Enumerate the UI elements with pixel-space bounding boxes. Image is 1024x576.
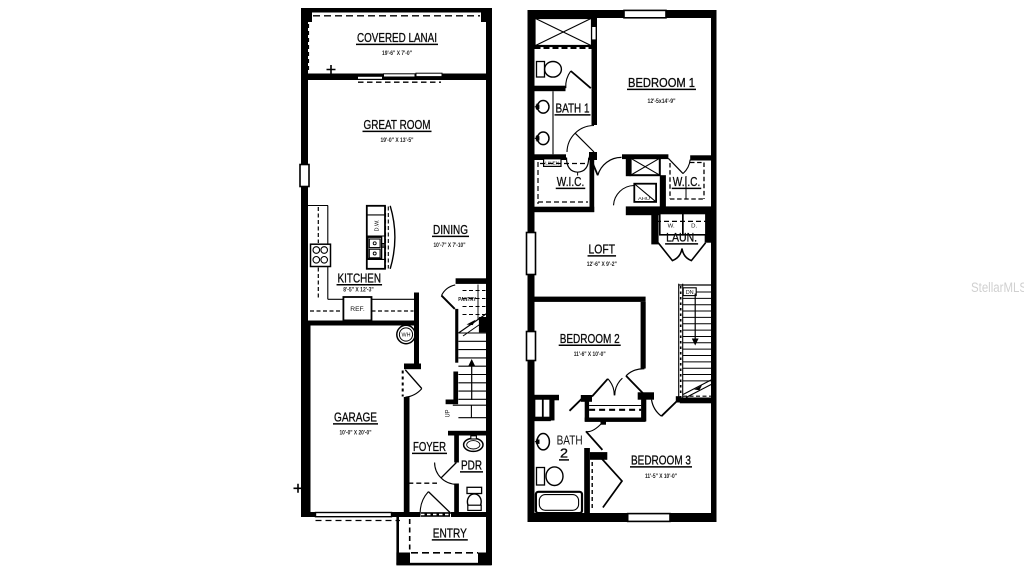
svg-text:12'-6" X 9'-2": 12'-6" X 9'-2" [587,261,617,268]
svg-text:W.I.C.: W.I.C. [557,174,585,189]
svg-text:LAUN.: LAUN. [666,231,697,245]
svg-text:D.W.: D.W. [375,219,381,231]
svg-text:19'-6" X 7'-0": 19'-6" X 7'-0" [382,50,412,57]
svg-text:DN: DN [686,290,694,296]
svg-text:11'-5" X 10'-0": 11'-5" X 10'-0" [645,473,677,480]
svg-text:COVERED LANAI: COVERED LANAI [357,30,437,45]
svg-text:GARAGE: GARAGE [334,410,377,425]
svg-text:10'-7" X 7'-10": 10'-7" X 7'-10" [434,242,466,249]
svg-text:11'-6" X 10'-0": 11'-6" X 10'-0" [574,351,606,358]
svg-text:2: 2 [560,446,568,461]
svg-text:UP: UP [445,410,452,418]
svg-text:AHU: AHU [638,196,651,202]
svg-text:8'-5" X 12'-3": 8'-5" X 12'-3" [343,286,374,293]
svg-text:DINING: DINING [433,222,468,237]
svg-text:PDR: PDR [461,458,482,473]
svg-text:KITCHEN: KITCHEN [338,270,382,285]
svg-text:BEDROOM 1: BEDROOM 1 [628,75,695,90]
svg-text:D.: D. [691,224,697,230]
svg-text:PANTRY: PANTRY [458,297,476,303]
svg-text:19'-0" X 13'-5": 19'-0" X 13'-5" [381,137,414,144]
svg-text:WH: WH [402,333,411,339]
svg-text:LOFT: LOFT [589,242,616,257]
svg-text:BATH 1: BATH 1 [556,101,590,116]
svg-text:BEDROOM 2: BEDROOM 2 [560,331,620,346]
svg-text:FOYER: FOYER [413,439,446,454]
svg-text:10'-0" X 20'-0": 10'-0" X 20'-0" [340,430,372,437]
svg-text:BEDROOM 3: BEDROOM 3 [631,453,691,468]
svg-text:ENTRY: ENTRY [433,526,467,541]
svg-text:StellarMLS: StellarMLS [971,280,1024,295]
svg-text:REF.: REF. [350,306,365,313]
svg-text:GREAT ROOM: GREAT ROOM [364,117,431,132]
svg-text:12'-5x14'-9": 12'-5x14'-9" [648,98,676,105]
svg-text:W.I.C.: W.I.C. [673,174,701,189]
svg-text:W.: W. [668,224,675,230]
